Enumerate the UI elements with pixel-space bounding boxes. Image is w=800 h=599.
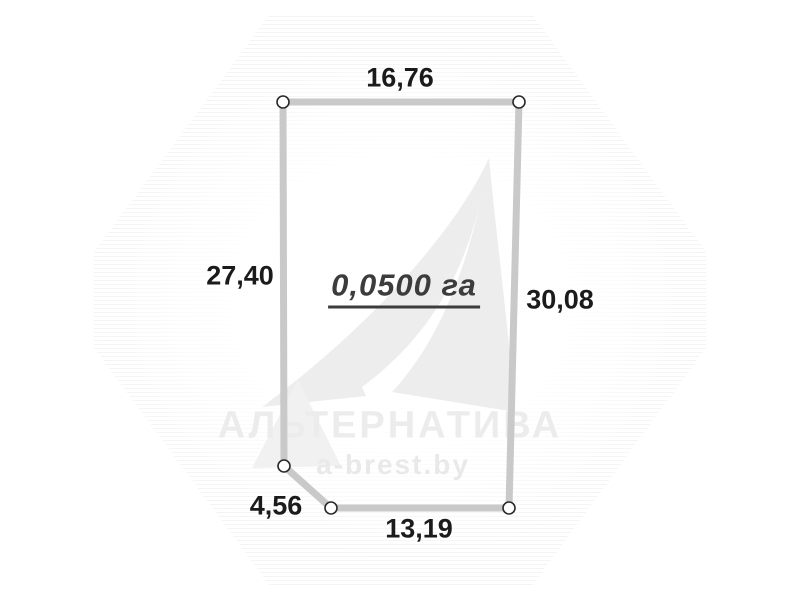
land-plot-diagram: АЛЬТЕРНАТИВА a-brest.by 16,76 30,08 13,1… [0, 0, 800, 599]
vertex-marker [513, 96, 525, 108]
vertex-marker [278, 460, 290, 472]
dimension-label-diagonal: 4,56 [250, 491, 303, 522]
dimension-label-top: 16,76 [366, 63, 434, 94]
vertex-marker [277, 96, 289, 108]
vertex-marker [325, 502, 337, 514]
area-label: 0,0500 га [328, 268, 480, 309]
vertex-marker [503, 502, 515, 514]
dimension-label-left: 27,40 [206, 261, 274, 292]
dimension-label-bottom: 13,19 [385, 514, 453, 545]
dimension-label-right: 30,08 [526, 285, 594, 316]
